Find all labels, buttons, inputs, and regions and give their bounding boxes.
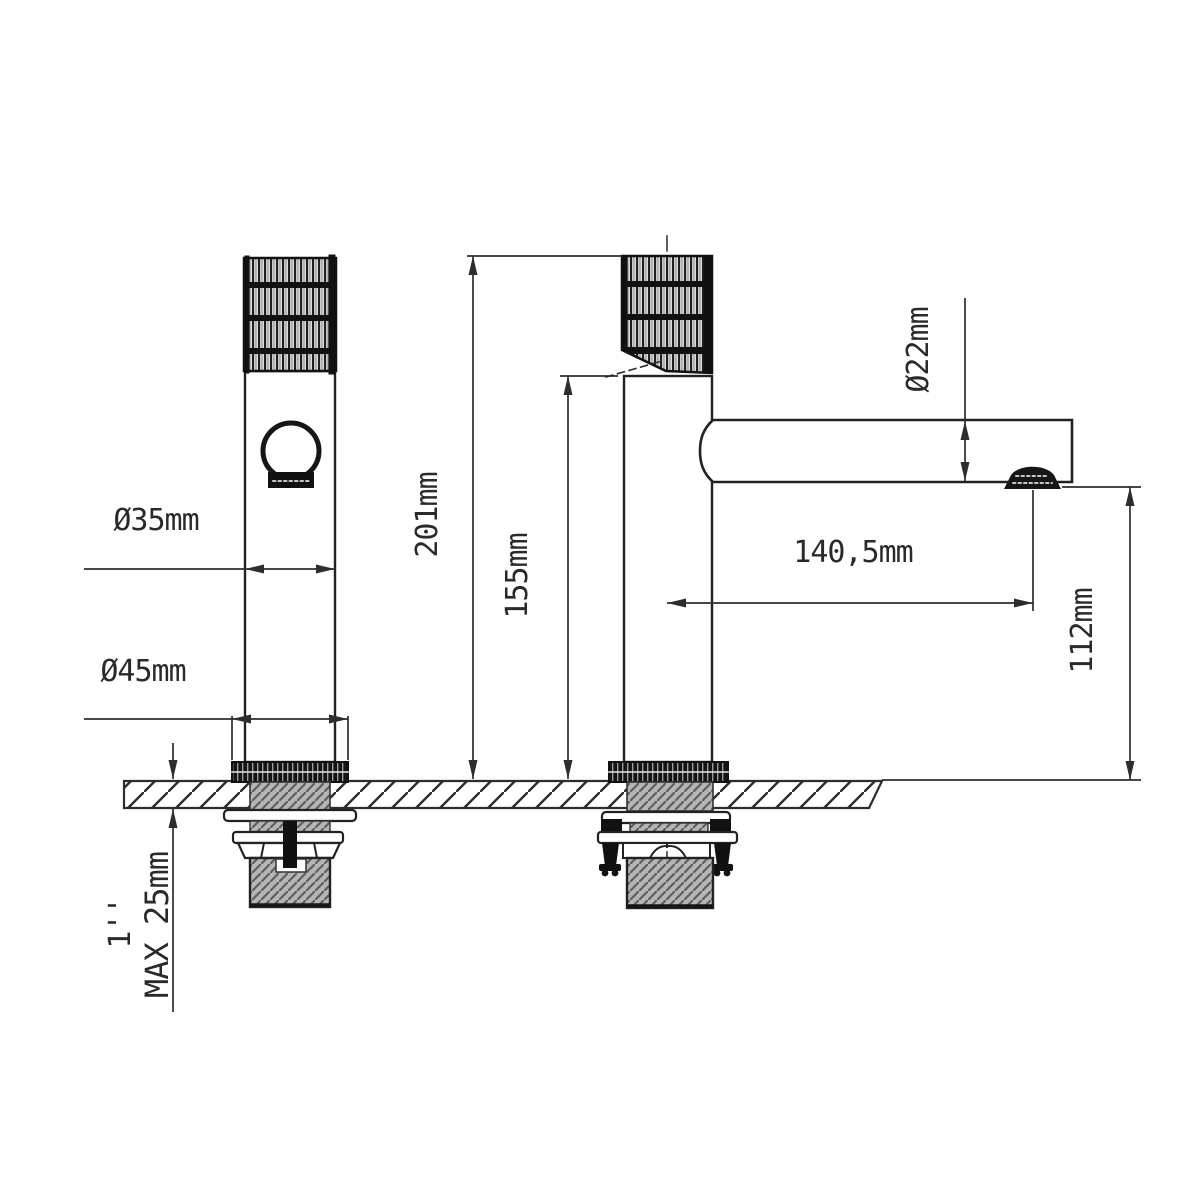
label-max-counter-thickness: MAX 25mm xyxy=(157,925,303,957)
front-base-ring xyxy=(232,762,348,782)
countertop-deck xyxy=(124,781,882,808)
side-mount-screw-right xyxy=(711,843,733,876)
drawing-canvas: Ø35mm Ø45mm 201mm 155mm Ø22mm 140,5mm 11… xyxy=(0,0,1200,1200)
label-base-diameter: Ø45mm xyxy=(143,672,228,702)
deck-slab xyxy=(124,781,882,808)
label-spout-reach: 140,5mm xyxy=(853,553,972,583)
side-base-ring xyxy=(609,762,728,782)
side-handle-knob xyxy=(622,256,712,374)
front-logo-circle xyxy=(263,423,319,479)
front-view xyxy=(224,258,356,907)
side-mount-screw-left xyxy=(599,843,621,876)
side-mount-plate xyxy=(598,832,737,843)
front-mount-stud xyxy=(283,821,297,868)
label-spout-diameter: Ø22mm xyxy=(919,350,1004,380)
handle-tilt-dashed-line xyxy=(606,361,662,377)
label-spout-top-height: 155mm xyxy=(518,576,603,606)
front-washer xyxy=(224,810,356,821)
label-spout-clearance: 112mm xyxy=(1083,631,1168,661)
front-logo-tab xyxy=(268,472,314,488)
side-body xyxy=(624,376,712,762)
front-handle-knob xyxy=(244,258,336,371)
label-handle-diameter: Ø35mm xyxy=(156,521,241,551)
side-threaded-tail xyxy=(627,858,713,908)
